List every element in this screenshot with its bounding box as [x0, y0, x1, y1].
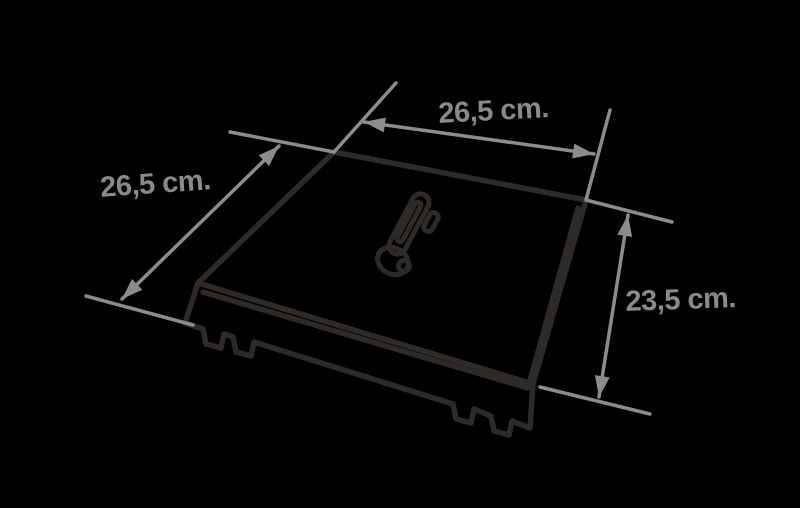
- lid-rim-inner-edge: [203, 208, 578, 388]
- dimension-label-top: 26,5 cm.: [438, 92, 550, 130]
- diagram-canvas: 26,5 cm. 26,5 cm. 23,5 cm.: [0, 0, 800, 508]
- extension-line-left-lower: [86, 296, 193, 325]
- dimension-line-right: [599, 215, 628, 397]
- dimension-label-right: 23,5 cm.: [625, 282, 737, 318]
- dimension-label-left: 26,5 cm.: [99, 164, 211, 204]
- dimension-diagram: 26,5 cm. 26,5 cm. 23,5 cm.: [0, 0, 800, 508]
- handle-pivot: [399, 261, 410, 272]
- extension-line-right-lower: [540, 387, 650, 414]
- lid-drawing: [185, 152, 586, 435]
- extension-line-left-upper: [230, 132, 334, 152]
- dimension-labels: 26,5 cm. 26,5 cm. 23,5 cm.: [99, 92, 736, 318]
- lid-front-face: [185, 283, 533, 435]
- lid-handle: [373, 191, 440, 280]
- dimension-lines: [86, 83, 672, 414]
- extension-line-top-left: [334, 83, 396, 152]
